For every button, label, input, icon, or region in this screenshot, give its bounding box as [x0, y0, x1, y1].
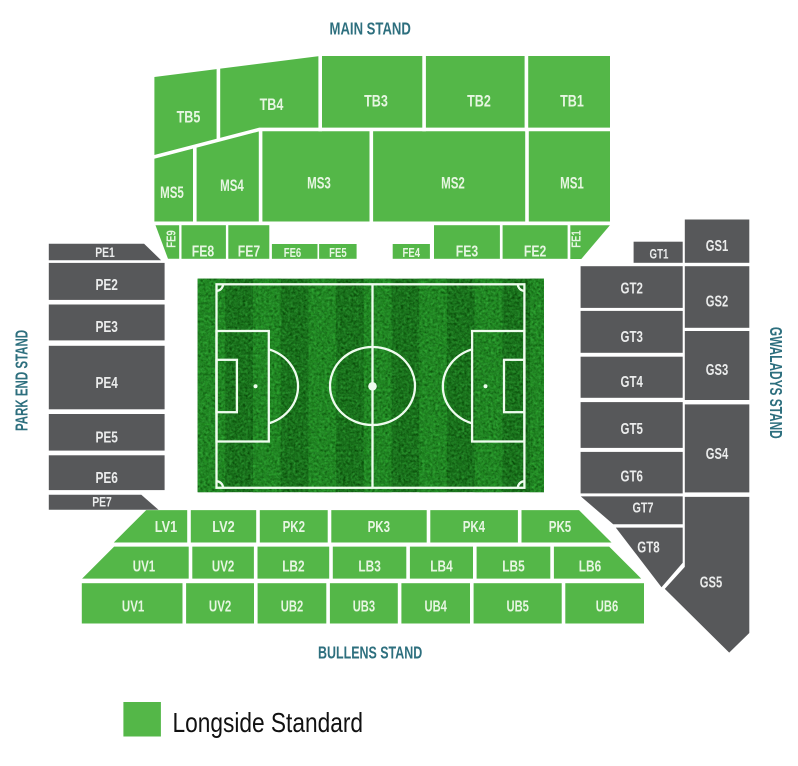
svg-text:GT4: GT4: [621, 374, 643, 391]
svg-text:TB4: TB4: [260, 95, 284, 114]
svg-text:MAIN STAND: MAIN STAND: [330, 19, 411, 39]
svg-text:UV2: UV2: [209, 598, 231, 615]
svg-text:GT8: GT8: [637, 540, 659, 557]
svg-text:GT5: GT5: [621, 421, 643, 438]
svg-text:TB2: TB2: [467, 92, 491, 111]
svg-text:UB5: UB5: [507, 598, 529, 615]
svg-text:GS3: GS3: [706, 362, 728, 379]
svg-text:PK5: PK5: [549, 519, 571, 536]
svg-text:BULLENS STAND: BULLENS STAND: [318, 643, 422, 663]
svg-text:LB5: LB5: [502, 558, 524, 575]
svg-text:MS3: MS3: [307, 174, 331, 193]
svg-text:MS4: MS4: [220, 176, 244, 195]
svg-text:FE1: FE1: [570, 230, 584, 248]
svg-text:UV1: UV1: [133, 558, 155, 575]
svg-text:GS1: GS1: [706, 238, 728, 255]
svg-text:FE8: FE8: [192, 243, 214, 260]
svg-text:TB1: TB1: [560, 92, 584, 111]
svg-text:UB6: UB6: [596, 598, 618, 615]
svg-text:MS2: MS2: [441, 174, 465, 193]
svg-text:MS5: MS5: [160, 183, 184, 202]
svg-text:TB5: TB5: [177, 108, 201, 127]
svg-text:UV1: UV1: [122, 598, 144, 615]
svg-text:PE7: PE7: [92, 494, 112, 510]
svg-text:PE1: PE1: [95, 244, 115, 260]
svg-text:UV2: UV2: [212, 558, 234, 575]
svg-text:GT2: GT2: [621, 281, 643, 298]
svg-text:PARK END STAND: PARK END STAND: [12, 330, 32, 431]
svg-text:PK4: PK4: [463, 519, 485, 536]
svg-text:FE2: FE2: [524, 243, 546, 260]
svg-text:FE5: FE5: [329, 246, 347, 260]
svg-text:Longside Standard: Longside Standard: [173, 707, 364, 738]
svg-text:GS2: GS2: [706, 294, 728, 311]
svg-text:PE6: PE6: [96, 470, 118, 487]
svg-text:PE4: PE4: [96, 375, 118, 392]
svg-text:MS1: MS1: [560, 174, 584, 193]
svg-text:GT6: GT6: [621, 469, 643, 486]
svg-text:LB6: LB6: [579, 558, 601, 575]
svg-text:UB3: UB3: [353, 598, 375, 615]
svg-text:FE9: FE9: [165, 230, 179, 248]
svg-text:UB4: UB4: [425, 598, 447, 615]
svg-text:FE7: FE7: [238, 243, 260, 260]
svg-text:GWALADYS STAND: GWALADYS STAND: [766, 327, 786, 439]
svg-text:PE2: PE2: [96, 277, 118, 294]
svg-text:LB3: LB3: [358, 558, 380, 575]
svg-text:FE3: FE3: [456, 243, 478, 260]
svg-text:LV1: LV1: [155, 519, 177, 536]
svg-text:PE5: PE5: [96, 430, 118, 447]
svg-text:FE4: FE4: [403, 246, 421, 260]
svg-text:LV2: LV2: [212, 519, 234, 536]
svg-text:PK3: PK3: [368, 519, 390, 536]
svg-text:LB4: LB4: [430, 558, 452, 575]
svg-text:GS4: GS4: [706, 446, 728, 463]
svg-text:PE3: PE3: [96, 319, 118, 336]
svg-text:GT1: GT1: [650, 247, 669, 262]
svg-text:GT3: GT3: [621, 329, 643, 346]
svg-text:LB2: LB2: [282, 558, 304, 575]
svg-text:GS5: GS5: [700, 575, 722, 592]
svg-text:GT7: GT7: [633, 500, 654, 517]
svg-text:FE6: FE6: [284, 246, 302, 260]
svg-text:TB3: TB3: [364, 92, 388, 111]
svg-text:PK2: PK2: [283, 519, 305, 536]
svg-text:UB2: UB2: [281, 598, 303, 615]
